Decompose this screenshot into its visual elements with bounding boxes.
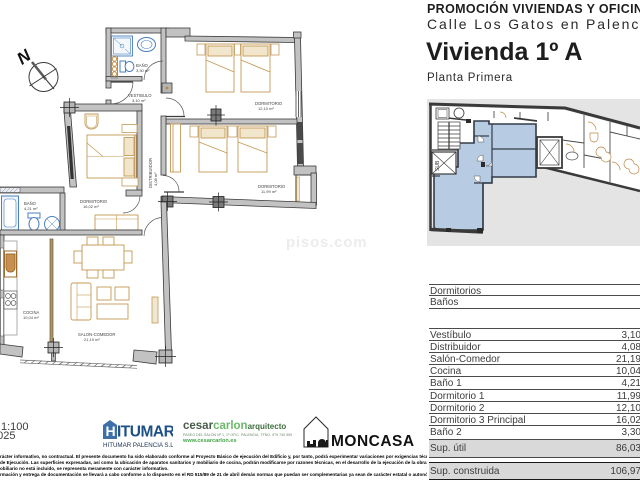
svg-text:4,08 m²: 4,08 m² [153, 172, 158, 186]
svg-text:MONCASA: MONCASA [331, 433, 415, 450]
svg-text:12,10 m²: 12,10 m² [258, 106, 274, 111]
svg-text:N: N [13, 45, 35, 68]
svg-text:16,02 m²: 16,02 m² [83, 204, 99, 209]
svg-text:10,04 m²: 10,04 m² [23, 315, 39, 320]
svg-text:3,10 m²: 3,10 m² [132, 98, 146, 103]
svg-text:pisos.com: pisos.com [286, 234, 367, 251]
svg-text:4,21 m²: 4,21 m² [24, 206, 38, 211]
svg-text:H: H [106, 423, 116, 439]
svg-text:SUB: SUB [435, 160, 441, 171]
svg-text:11,99 m²: 11,99 m² [261, 189, 277, 194]
svg-text:21,19 m²: 21,19 m² [84, 337, 100, 342]
svg-text:ITUMAR: ITUMAR [117, 424, 173, 441]
svg-text:HITUMAR PALENCIA S.L.: HITUMAR PALENCIA S.L. [103, 442, 173, 449]
